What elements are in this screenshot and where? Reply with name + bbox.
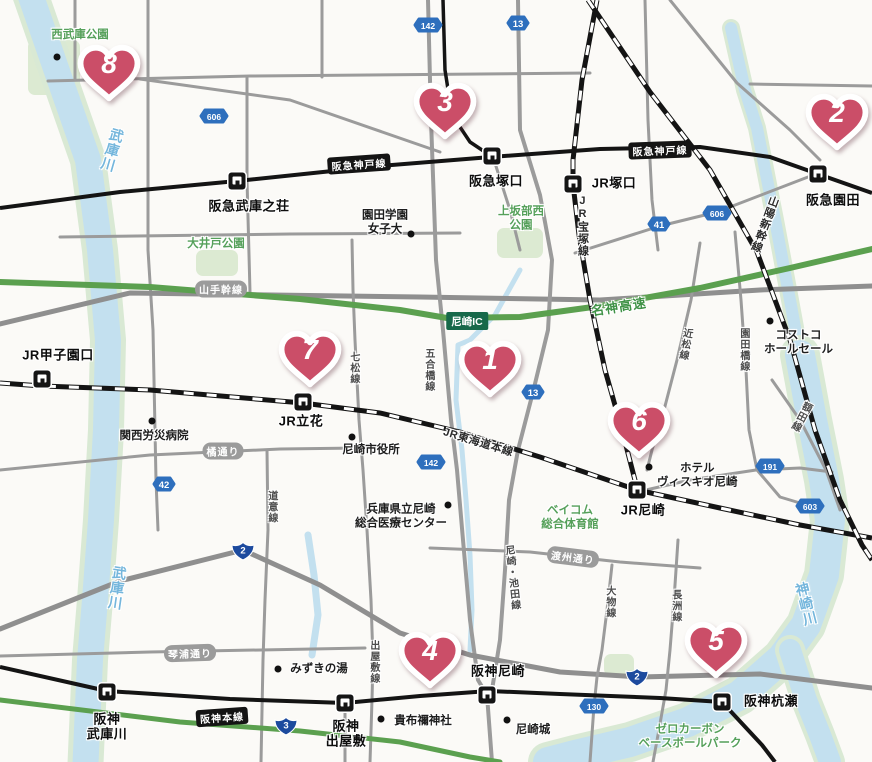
station-icon — [629, 482, 646, 499]
poi-dot — [646, 464, 653, 471]
poi-dot — [445, 502, 452, 509]
svg-text:2: 2 — [634, 672, 639, 683]
station-icon — [229, 173, 246, 190]
heart-number: 7 — [278, 334, 342, 366]
road-label: 山手幹線 — [195, 281, 247, 298]
station-icon — [295, 394, 312, 411]
station-icon — [484, 148, 501, 165]
svg-text:130: 130 — [587, 702, 601, 712]
poi-dot — [504, 717, 511, 724]
station-icon-door — [571, 183, 575, 187]
svg-text:13: 13 — [513, 19, 524, 30]
station-icon — [565, 176, 582, 193]
station-icon — [99, 684, 116, 701]
route-badge-130: 130 — [577, 698, 611, 715]
heart-marker-7: 7 — [278, 330, 342, 388]
station-icon-door — [105, 691, 109, 695]
road-label: 橘通り — [203, 443, 244, 460]
road-4 — [140, 79, 440, 152]
route-badge-41: 41 — [645, 216, 673, 233]
station-icon — [34, 371, 51, 388]
poi-dot — [349, 434, 356, 441]
heart-number: 1 — [458, 344, 522, 376]
poi-dot — [408, 231, 415, 238]
rail-label: 阪急神戸線 — [628, 140, 692, 159]
heart-marker-1: 1 — [458, 340, 522, 398]
route-badge-606: 606 — [700, 205, 734, 222]
svg-text:191: 191 — [763, 462, 777, 472]
rail-label: 阪神本線 — [195, 707, 248, 728]
map-canvas: 西武庫公園大井戸公園上坂部西 公園園田学園 女子大関西労災病院尼崎市役所兵庫県立… — [0, 0, 872, 762]
svg-text:2: 2 — [240, 546, 245, 557]
road-14 — [0, 448, 360, 470]
svg-text:603: 603 — [803, 502, 817, 512]
route-badge-191: 191 — [753, 458, 787, 475]
svg-text:606: 606 — [207, 112, 221, 122]
svg-text:13: 13 — [528, 388, 539, 399]
interchange-badge: 尼崎IC — [446, 312, 488, 330]
station-icon-door — [301, 401, 305, 405]
svg-text:142: 142 — [424, 458, 438, 468]
heart-marker-6: 6 — [607, 401, 671, 459]
road-5 — [247, 78, 250, 292]
road-10 — [261, 450, 268, 762]
road-9 — [352, 240, 373, 762]
route-badge-13: 13 — [519, 384, 547, 401]
heart-marker-3: 3 — [413, 82, 477, 140]
poi-dot — [54, 54, 61, 61]
road-24 — [750, 84, 872, 86]
route-badge-42: 42 — [150, 476, 178, 493]
heart-number: 5 — [684, 625, 748, 657]
route-badge-603: 603 — [793, 498, 827, 515]
heart-number: 4 — [398, 635, 462, 667]
route-badge-142: 142 — [414, 454, 448, 471]
station-icon-door — [490, 155, 494, 159]
heart-number: 2 — [805, 97, 869, 129]
station-icon — [337, 695, 354, 712]
svg-text:41: 41 — [654, 220, 665, 231]
park-area — [497, 228, 543, 258]
route-badge-606: 606 — [197, 108, 231, 125]
route-badge-142: 142 — [411, 17, 445, 34]
road-6 — [60, 233, 460, 237]
hankyu-kobe-line — [0, 147, 872, 208]
svg-text:3: 3 — [283, 721, 288, 732]
route-badge-2: 2 — [230, 541, 256, 562]
heart-marker-5: 5 — [684, 621, 748, 679]
route-badge-3: 3 — [273, 716, 299, 737]
poi-dot — [149, 418, 156, 425]
station-icon-door — [635, 489, 639, 493]
heart-number: 8 — [77, 48, 141, 80]
yomo-river — [308, 535, 318, 655]
road-label: 琴浦通り — [164, 644, 217, 663]
svg-text:42: 42 — [159, 480, 170, 491]
station-icon-door — [816, 173, 820, 177]
poi-dot — [767, 318, 774, 325]
station-icon-door — [40, 378, 44, 382]
heart-number: 3 — [413, 86, 477, 118]
svg-text:606: 606 — [710, 209, 724, 219]
poi-dot — [275, 666, 282, 673]
heart-marker-2: 2 — [805, 93, 869, 151]
heart-number: 6 — [607, 405, 671, 437]
svg-text:142: 142 — [421, 21, 435, 31]
heart-marker-8: 8 — [77, 44, 141, 102]
station-icon-door — [343, 702, 347, 706]
station-icon — [714, 694, 731, 711]
route-badge-13: 13 — [504, 15, 532, 32]
station-icon — [810, 166, 827, 183]
heart-marker-4: 4 — [398, 631, 462, 689]
station-icon — [479, 687, 496, 704]
station-icon-door — [235, 180, 239, 184]
road-22 — [645, 0, 658, 250]
route-badge-2: 2 — [624, 667, 650, 688]
park-area — [196, 250, 238, 276]
station-icon-door — [485, 694, 489, 698]
station-icon-door — [720, 701, 724, 705]
poi-dot — [378, 716, 385, 723]
